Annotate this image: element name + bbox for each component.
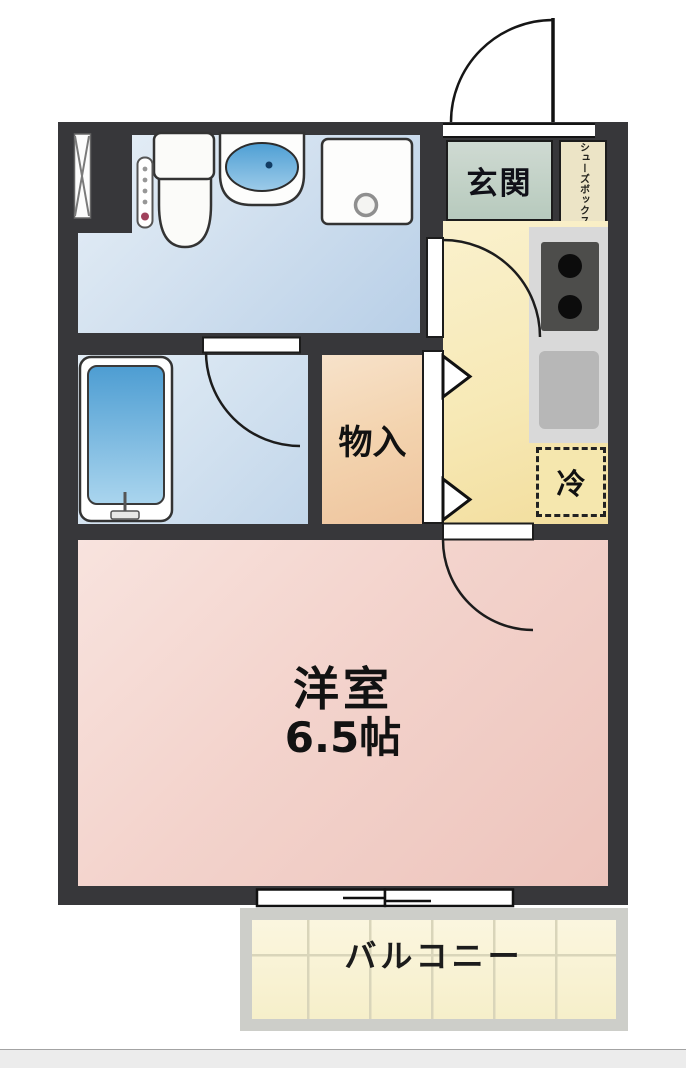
storage-label: 物入 xyxy=(339,415,407,464)
floorplan: 玄関 シューズボックス 冷 物入 洋室 6.5帖 バルコニー xyxy=(0,0,686,1068)
shoe-box: シューズボックス xyxy=(559,140,607,228)
stove xyxy=(541,242,599,331)
refrigerator-label: 冷 xyxy=(556,461,585,503)
balcony: バルコニー xyxy=(240,908,628,1031)
balcony-label: バルコニー xyxy=(344,931,523,977)
storage-closet: 物入 xyxy=(322,355,423,524)
kitchen-sink xyxy=(539,351,599,429)
entrance-door-icon xyxy=(451,18,553,122)
western-room: 洋室 6.5帖 xyxy=(78,540,608,886)
bottom-bar xyxy=(0,1049,686,1068)
western-room-label: 洋室 xyxy=(293,664,393,715)
shoe-box-label: シューズボックス xyxy=(576,142,591,226)
refrigerator-space: 冷 xyxy=(536,447,606,517)
entrance-label: 玄関 xyxy=(467,158,533,203)
bathroom-area xyxy=(78,355,308,524)
western-room-size: 6.5帖 xyxy=(285,714,401,762)
entrance-threshold xyxy=(443,123,595,138)
entrance-area: 玄関 xyxy=(446,140,553,221)
